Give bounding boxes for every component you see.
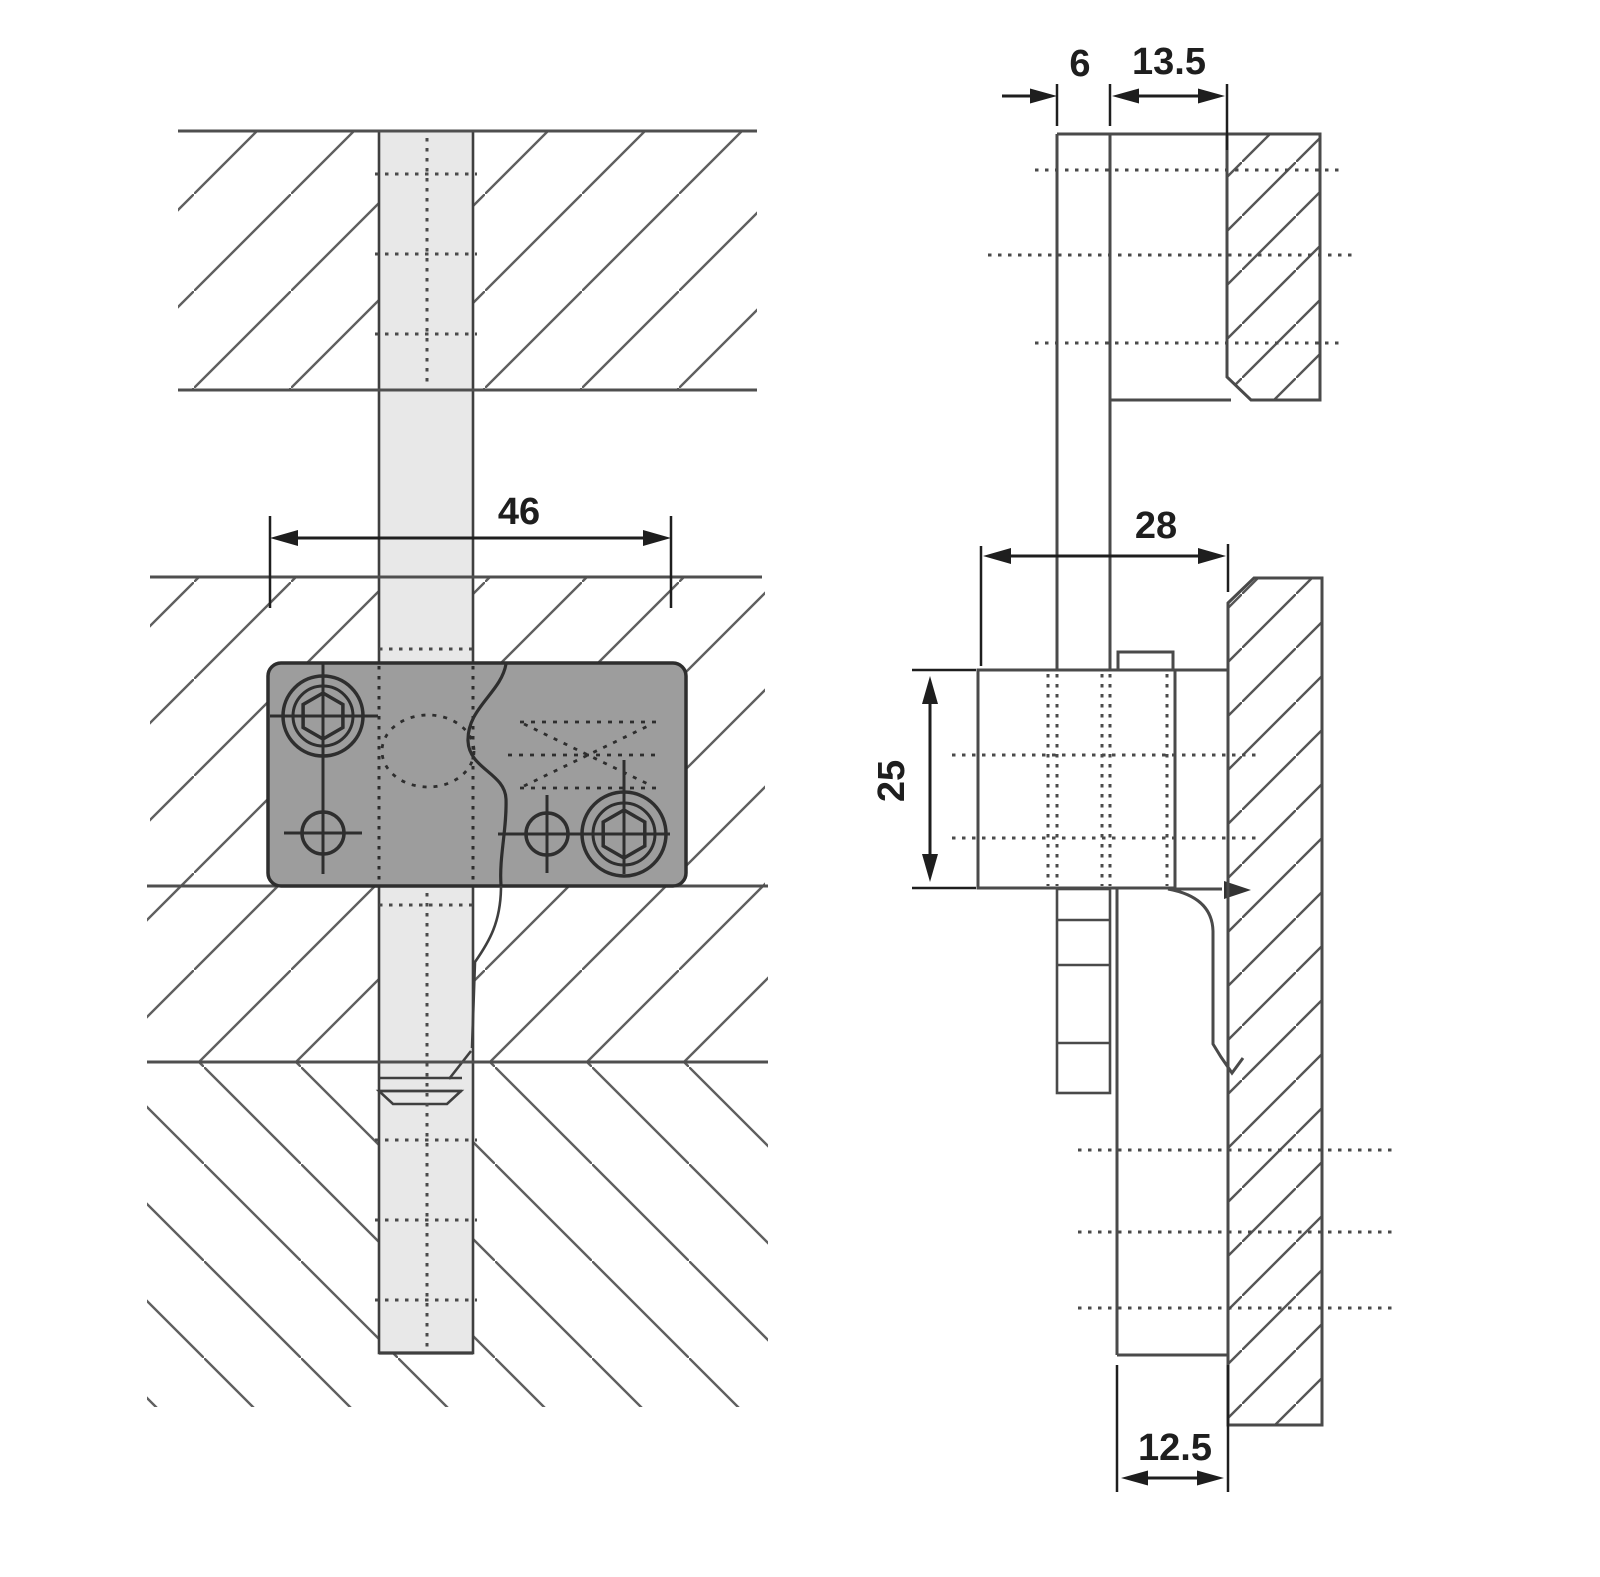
side-view: 6 13.5 28 25 12.5: [871, 41, 1392, 1492]
technical-drawing-page: 46: [0, 0, 1600, 1577]
arrow-right-icon: [1030, 89, 1057, 104]
dim-25-label: 25: [871, 760, 913, 802]
side-top-hatched-block: [1227, 134, 1320, 400]
dim-28-label: 28: [1135, 505, 1177, 547]
dim-28: 28: [981, 505, 1228, 666]
front-view: 46: [147, 131, 768, 1407]
dim-6-label: 6: [1069, 43, 1090, 85]
dim-46-label: 46: [498, 491, 540, 533]
arrow-left-icon: [1112, 89, 1139, 104]
body-outline: [978, 670, 1175, 888]
arrow-left-icon: [983, 548, 1011, 564]
dim-12-5-label: 12.5: [1138, 1427, 1212, 1469]
arrow-right-icon: [643, 530, 671, 546]
dim-25: 25: [871, 670, 976, 888]
arrow-down-icon: [922, 854, 938, 882]
arrow-right-icon: [1198, 89, 1225, 104]
arrow-right-icon: [1198, 548, 1226, 564]
arrow-right-icon: [1197, 1471, 1224, 1486]
arrow-left-icon: [1121, 1471, 1148, 1486]
side-fitting-body: [978, 652, 1251, 1355]
arrow-left-icon: [270, 530, 298, 546]
side-vertical-panel: [1228, 578, 1322, 1425]
dim-13-5-label: 13.5: [1132, 41, 1206, 83]
body-top-tab: [1118, 652, 1173, 670]
dim-12-5: 12.5: [1117, 1365, 1228, 1492]
arrow-up-icon: [922, 676, 938, 704]
fitting-installation-drawing: 46: [0, 0, 1600, 1577]
